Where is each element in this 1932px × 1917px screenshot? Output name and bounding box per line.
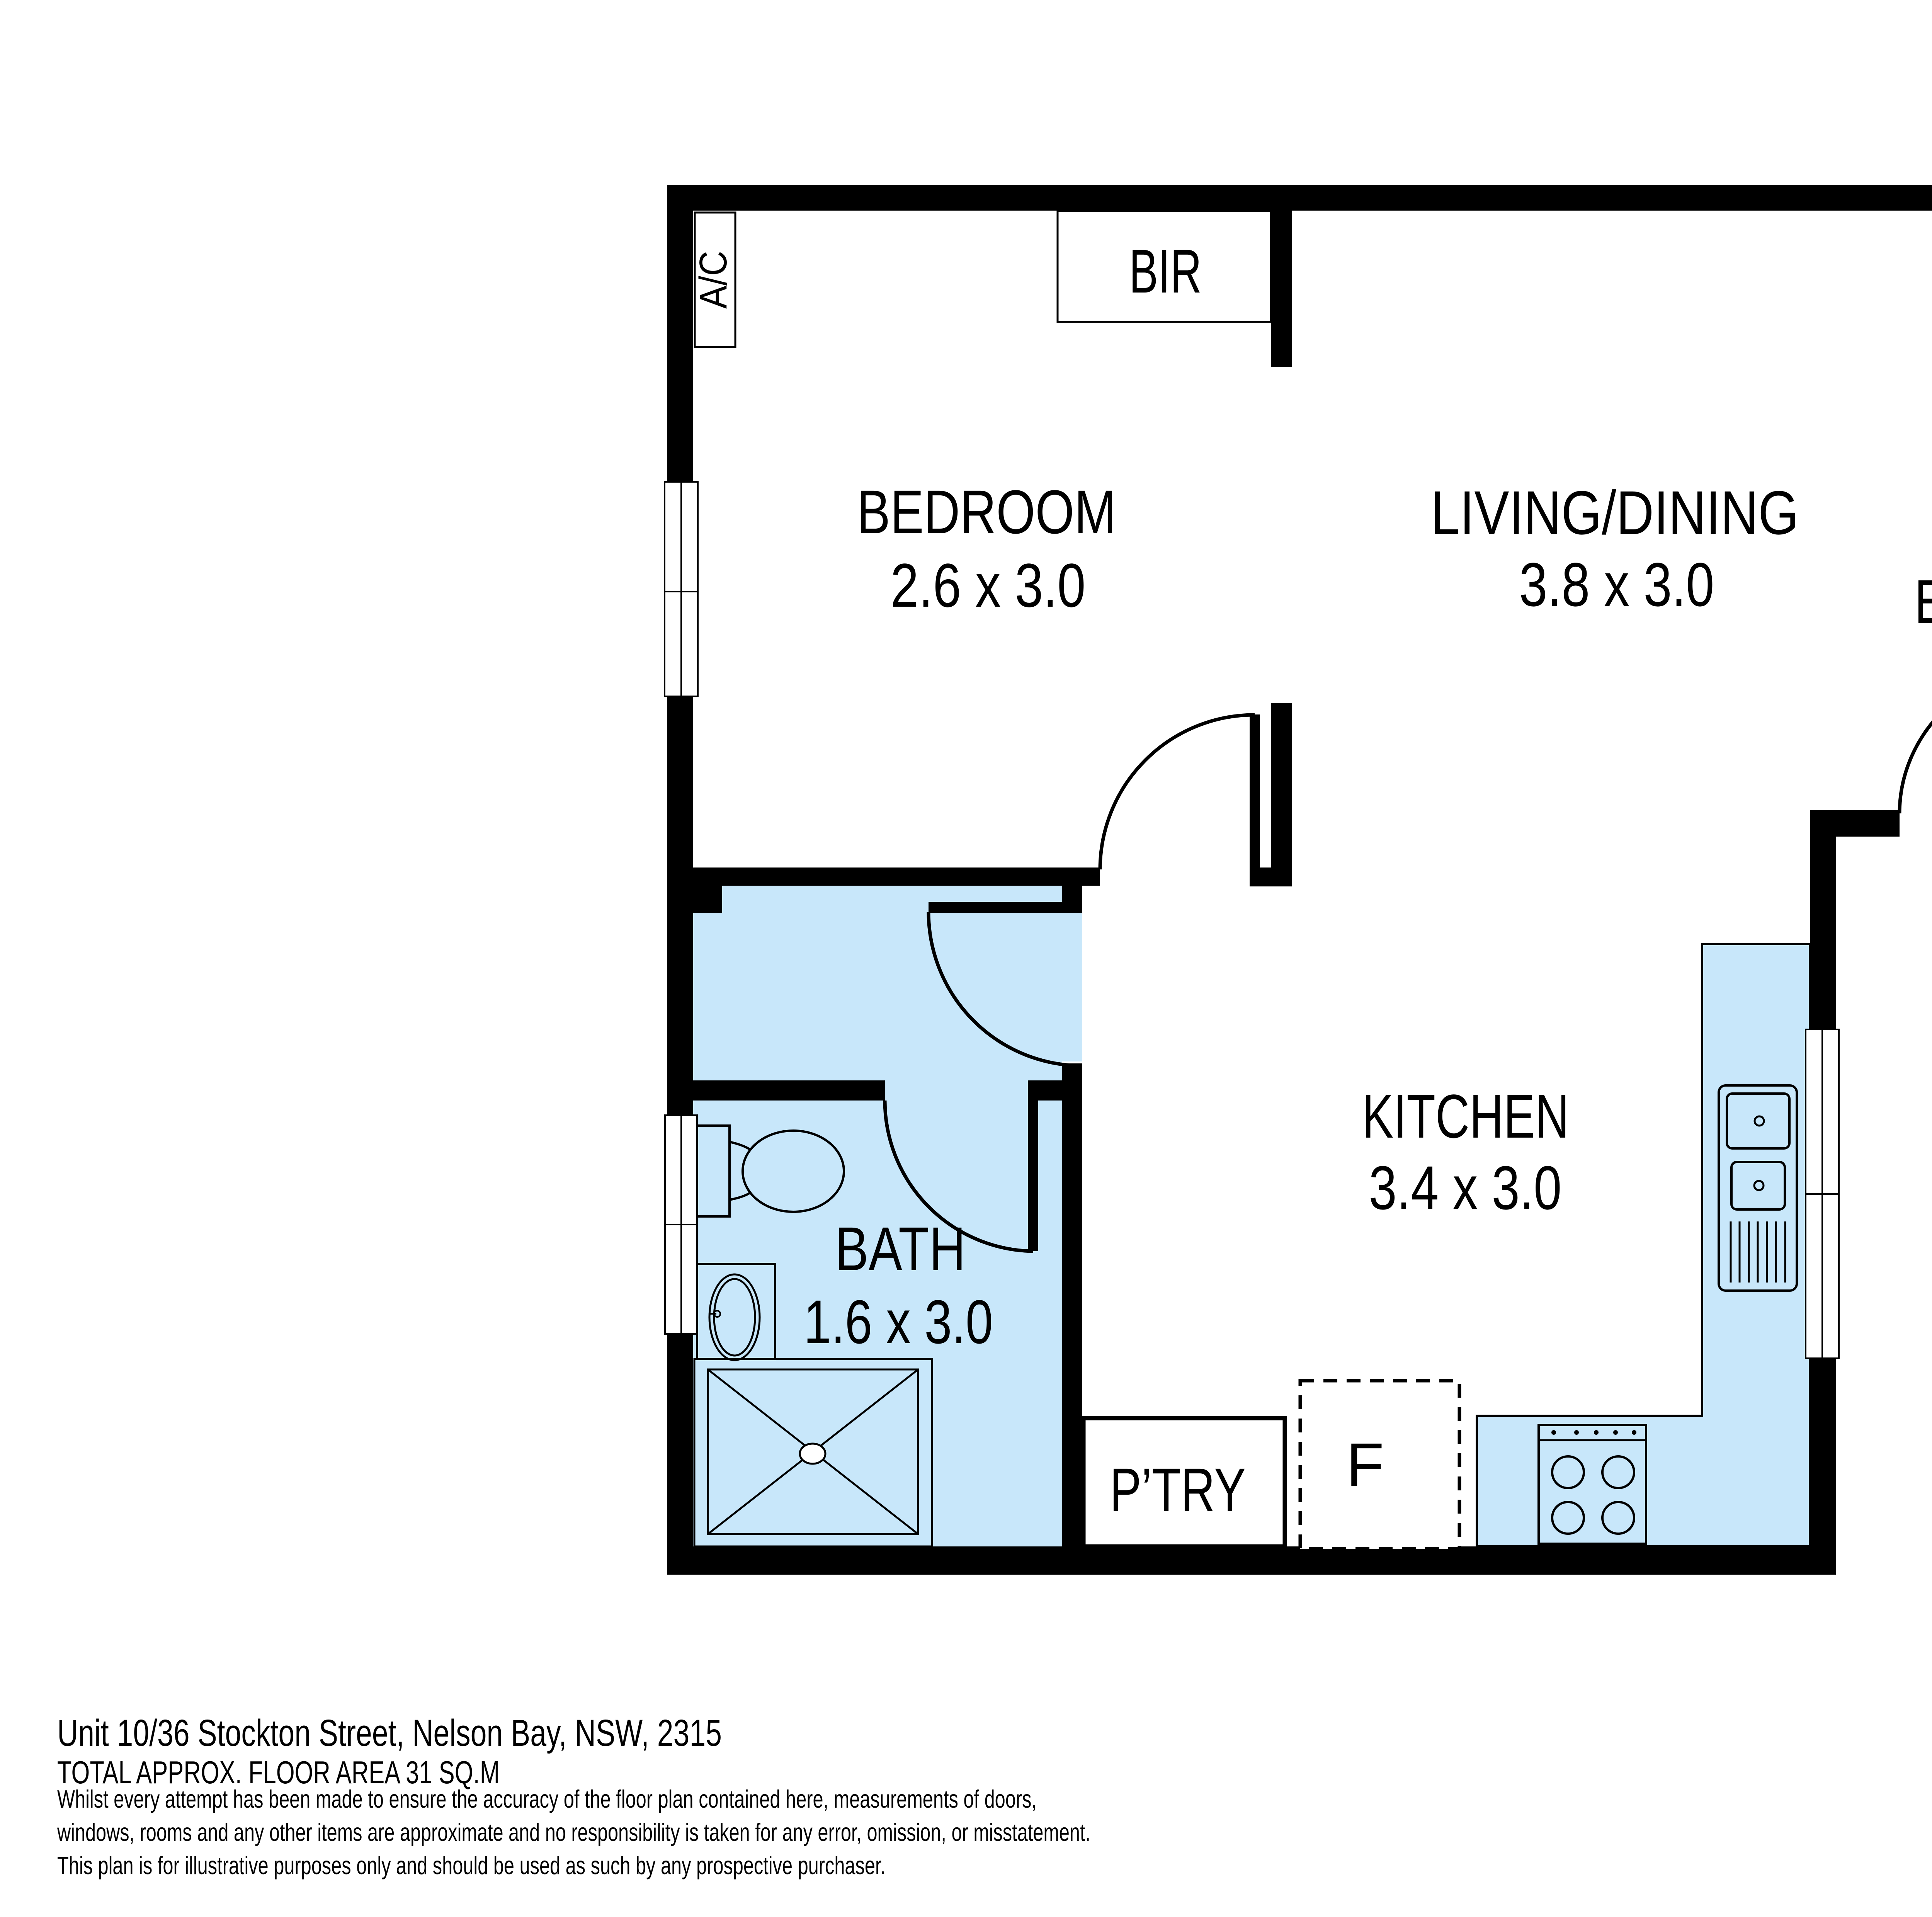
svg-text:Whilst every attempt has been: Whilst every attempt has been made to en… xyxy=(57,1785,1037,1813)
svg-text:BATH: BATH xyxy=(835,1214,966,1283)
svg-text:ENTRY: ENTRY xyxy=(1915,567,1932,636)
svg-text:Unit 10/36 Stockton Street, Ne: Unit 10/36 Stockton Street, Nelson Bay, … xyxy=(57,1712,722,1754)
svg-text:F: F xyxy=(1346,1430,1384,1499)
svg-text:windows, rooms and any other i: windows, rooms and any other items are a… xyxy=(57,1818,1090,1846)
svg-text:BEDROOM: BEDROOM xyxy=(857,477,1116,546)
svg-text:3.8 x 3.0: 3.8 x 3.0 xyxy=(1519,550,1714,619)
svg-text:P’TRY: P’TRY xyxy=(1110,1455,1246,1524)
svg-text:KITCHEN: KITCHEN xyxy=(1362,1082,1569,1151)
svg-text:A/C: A/C xyxy=(692,251,735,309)
svg-text:This plan is for illustrative: This plan is for illustrative purposes o… xyxy=(57,1851,886,1880)
svg-text:2.6 x 3.0: 2.6 x 3.0 xyxy=(891,551,1086,620)
svg-text:LIVING/DINING: LIVING/DINING xyxy=(1431,478,1799,547)
svg-text:BIR: BIR xyxy=(1129,236,1202,306)
svg-text:3.4 x 3.0: 3.4 x 3.0 xyxy=(1369,1153,1562,1222)
svg-text:1.6 x 3.0: 1.6 x 3.0 xyxy=(804,1287,993,1356)
